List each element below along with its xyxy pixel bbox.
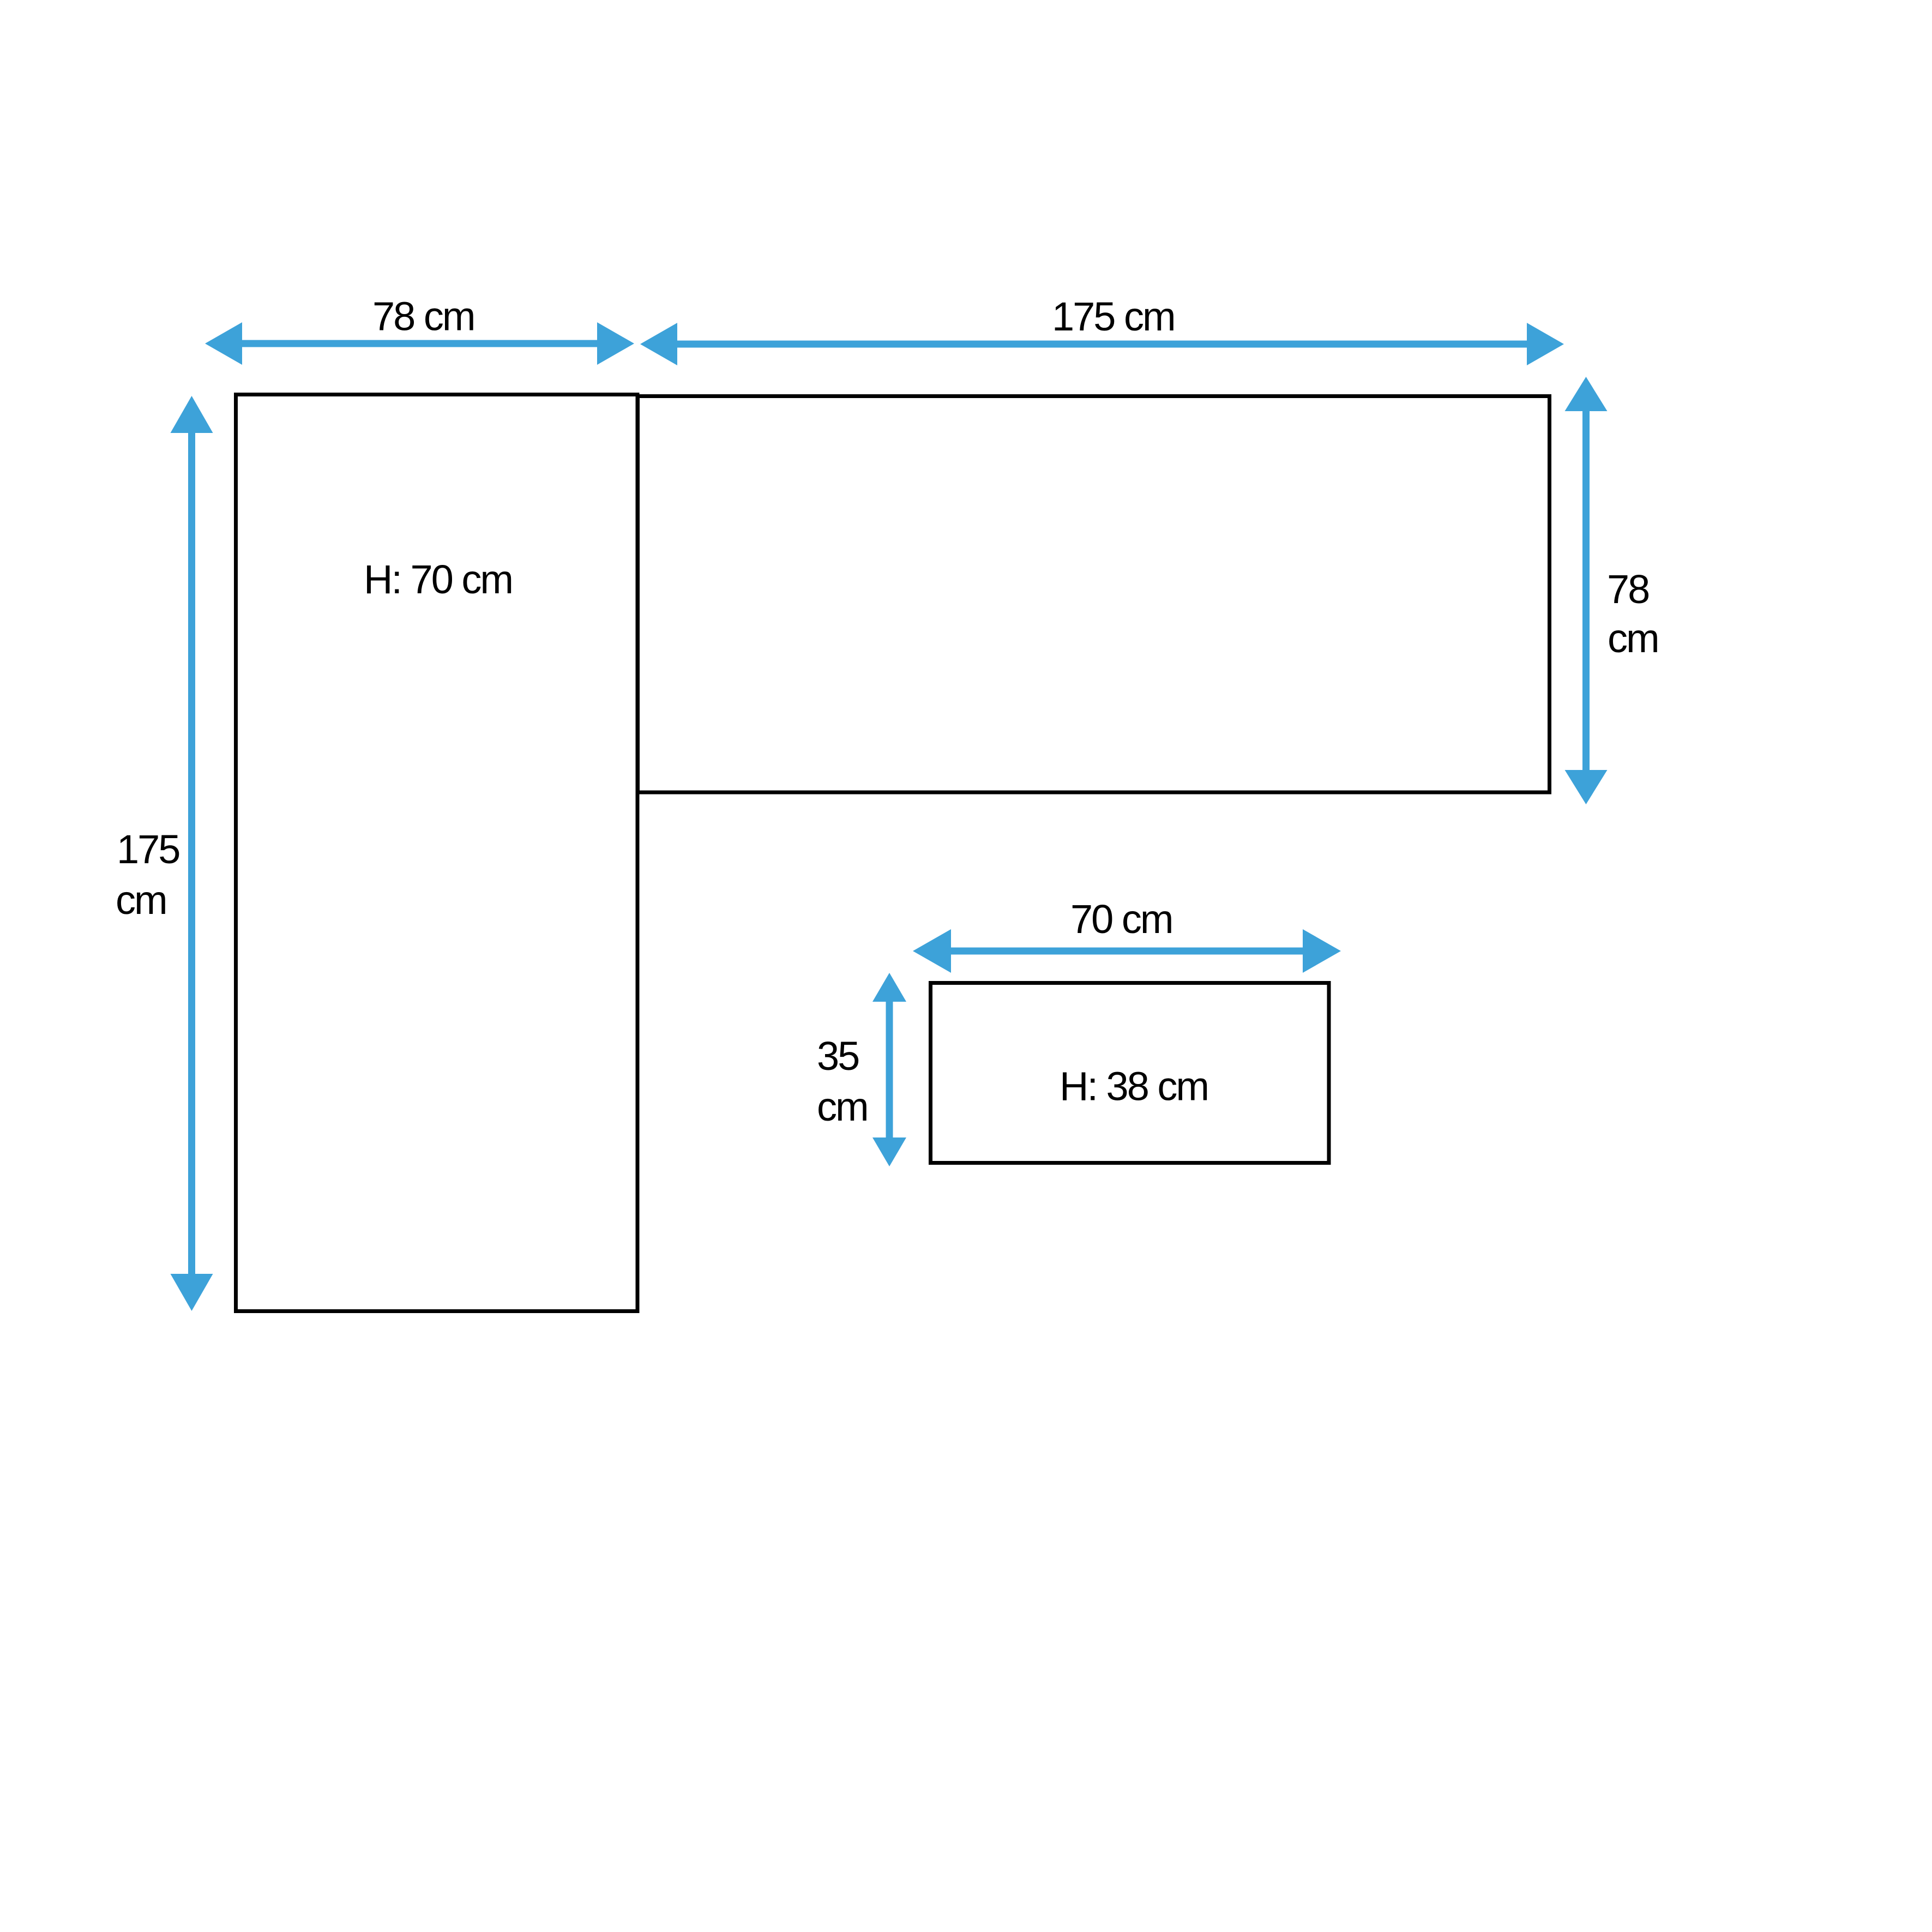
svg-text:H: 70 cm: H: 70 cm [364,557,512,602]
svg-text:175: 175 [117,827,179,872]
svg-text:70 cm: 70 cm [1070,896,1172,942]
svg-text:H: 38 cm: H: 38 cm [1060,1064,1208,1109]
svg-text:35: 35 [817,1033,859,1079]
svg-text:175 cm: 175 cm [1052,294,1175,339]
svg-text:cm: cm [817,1084,868,1129]
svg-text:78 cm: 78 cm [372,294,474,339]
svg-text:78: 78 [1607,567,1648,612]
svg-text:cm: cm [1608,616,1658,661]
svg-text:cm: cm [116,877,166,923]
